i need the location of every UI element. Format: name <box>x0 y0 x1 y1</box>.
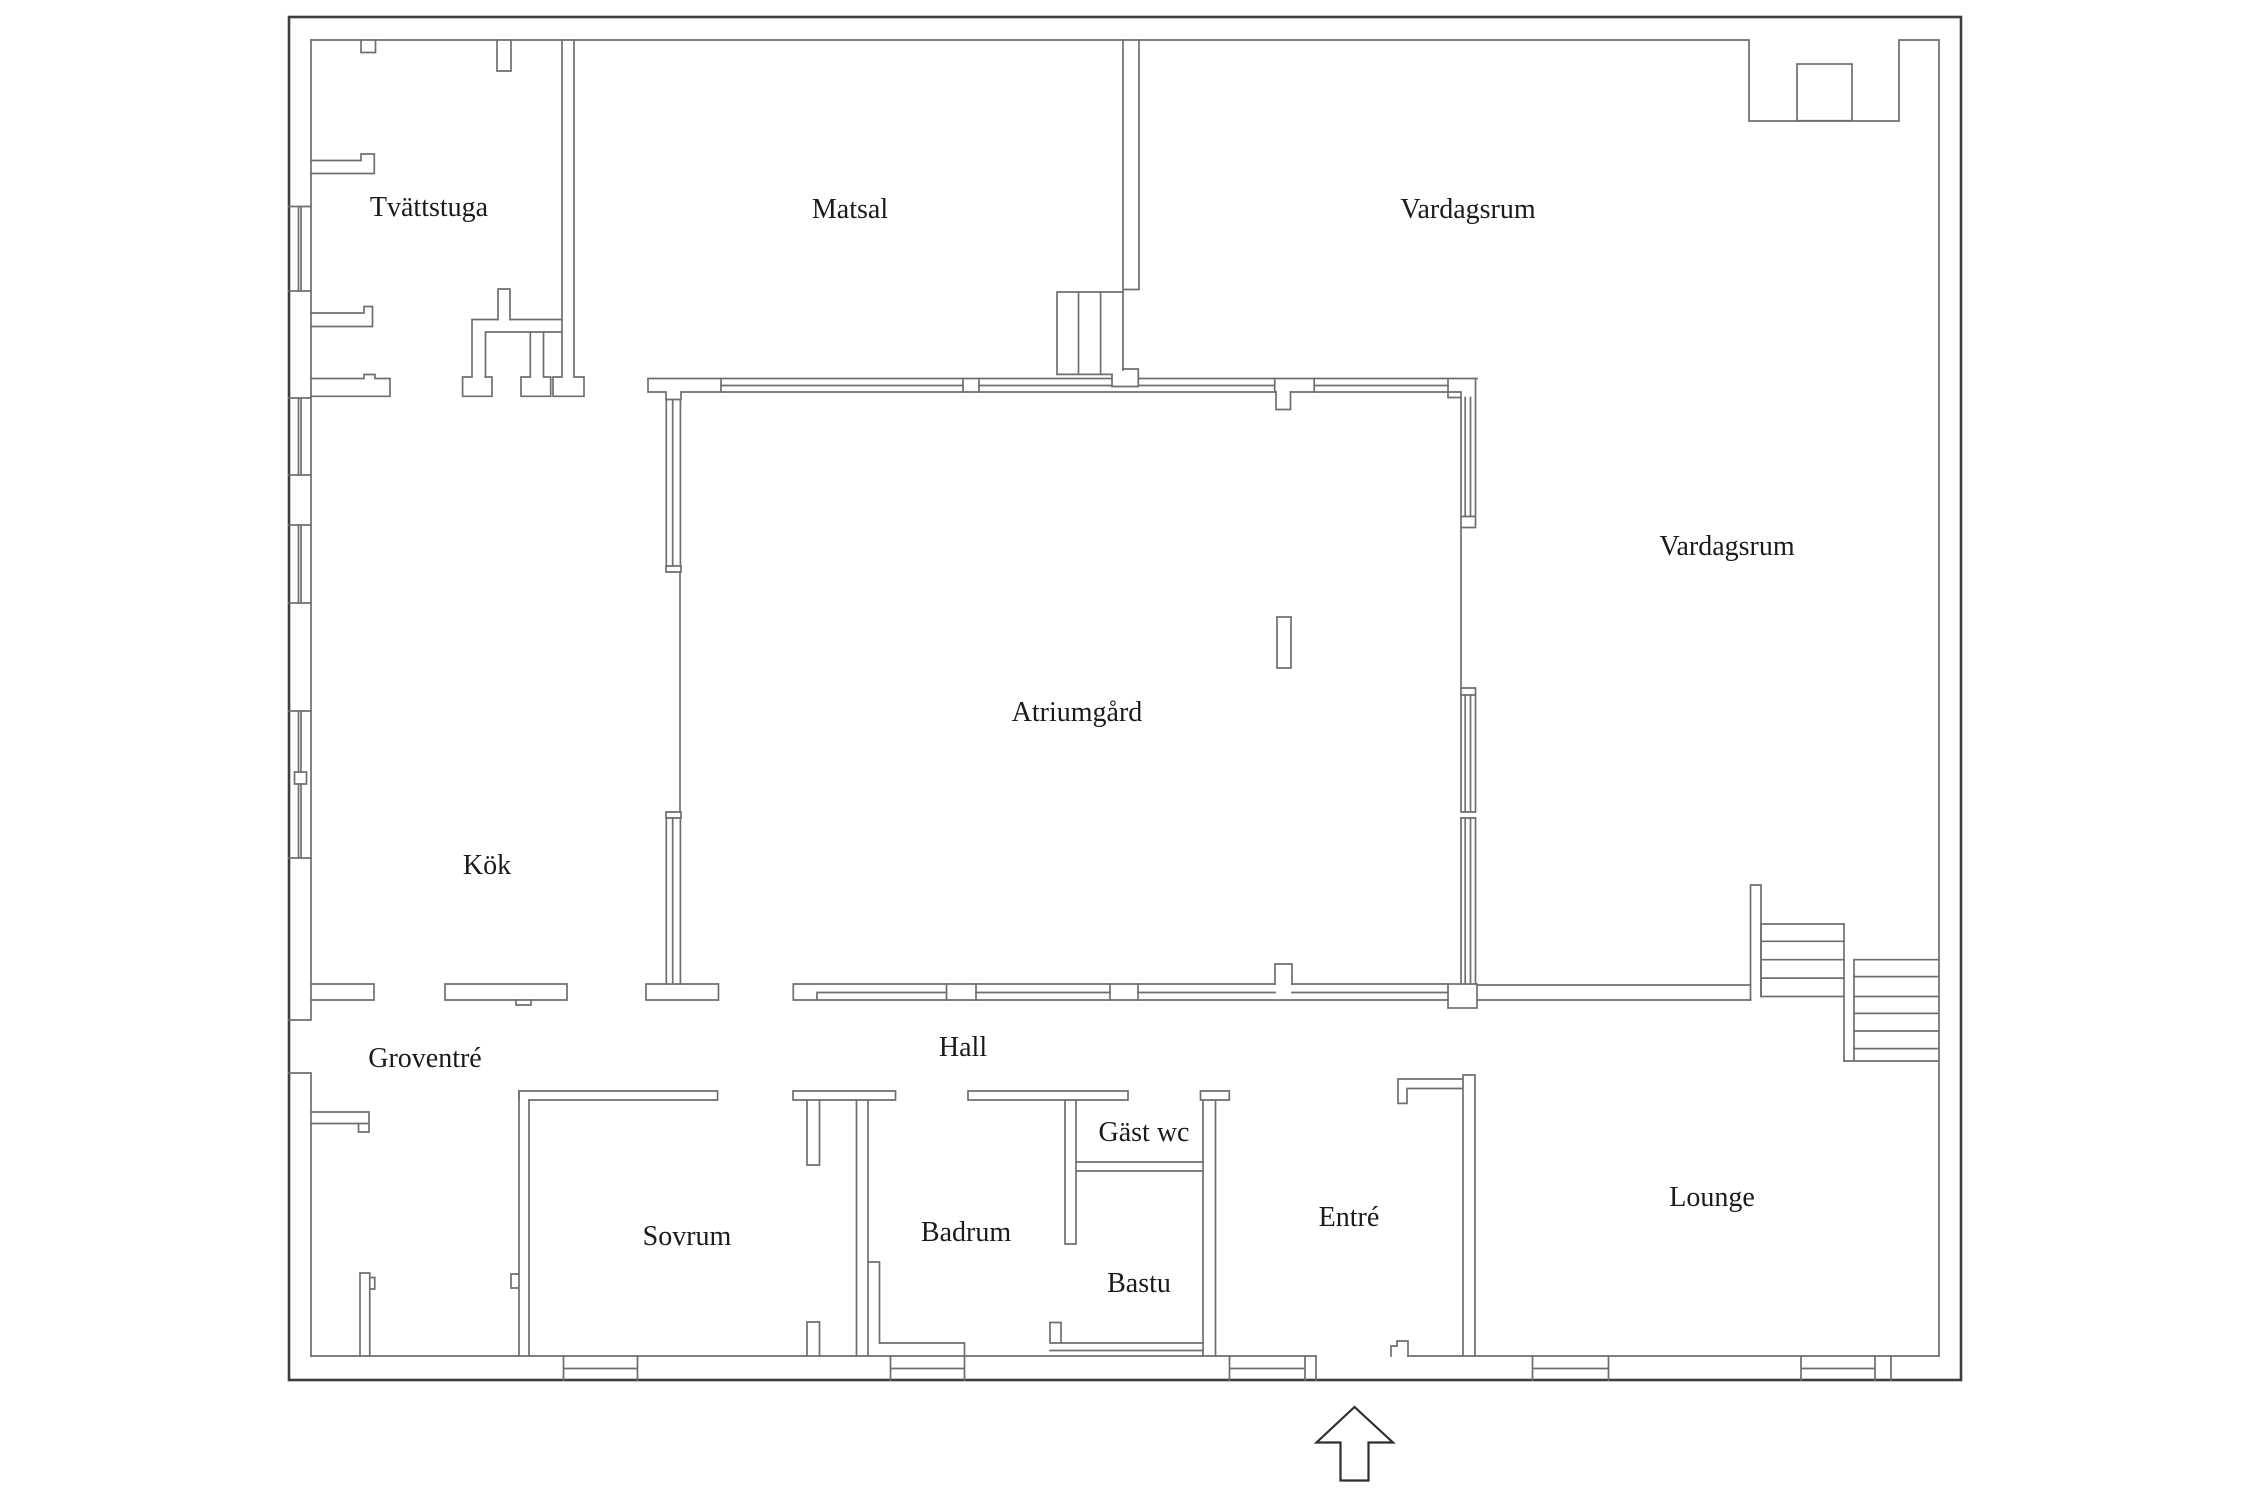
svg-text:Hall: Hall <box>939 1032 987 1063</box>
svg-text:Sovrum: Sovrum <box>643 1221 732 1252</box>
svg-text:Vardagsrum: Vardagsrum <box>1400 194 1536 225</box>
svg-text:Atriumgård: Atriumgård <box>1012 697 1143 728</box>
svg-text:Matsal: Matsal <box>812 194 888 225</box>
svg-text:Badrum: Badrum <box>921 1217 1011 1248</box>
svg-text:Bastu: Bastu <box>1107 1268 1171 1299</box>
svg-text:Vardagsrum: Vardagsrum <box>1659 531 1795 562</box>
svg-text:Lounge: Lounge <box>1669 1182 1755 1213</box>
svg-text:Entré: Entré <box>1319 1202 1380 1233</box>
svg-text:Kök: Kök <box>463 850 511 881</box>
svg-text:Tvättstuga: Tvättstuga <box>370 192 489 223</box>
svg-text:Groventré: Groventré <box>368 1043 482 1074</box>
svg-text:Gäst wc: Gäst wc <box>1099 1117 1190 1148</box>
